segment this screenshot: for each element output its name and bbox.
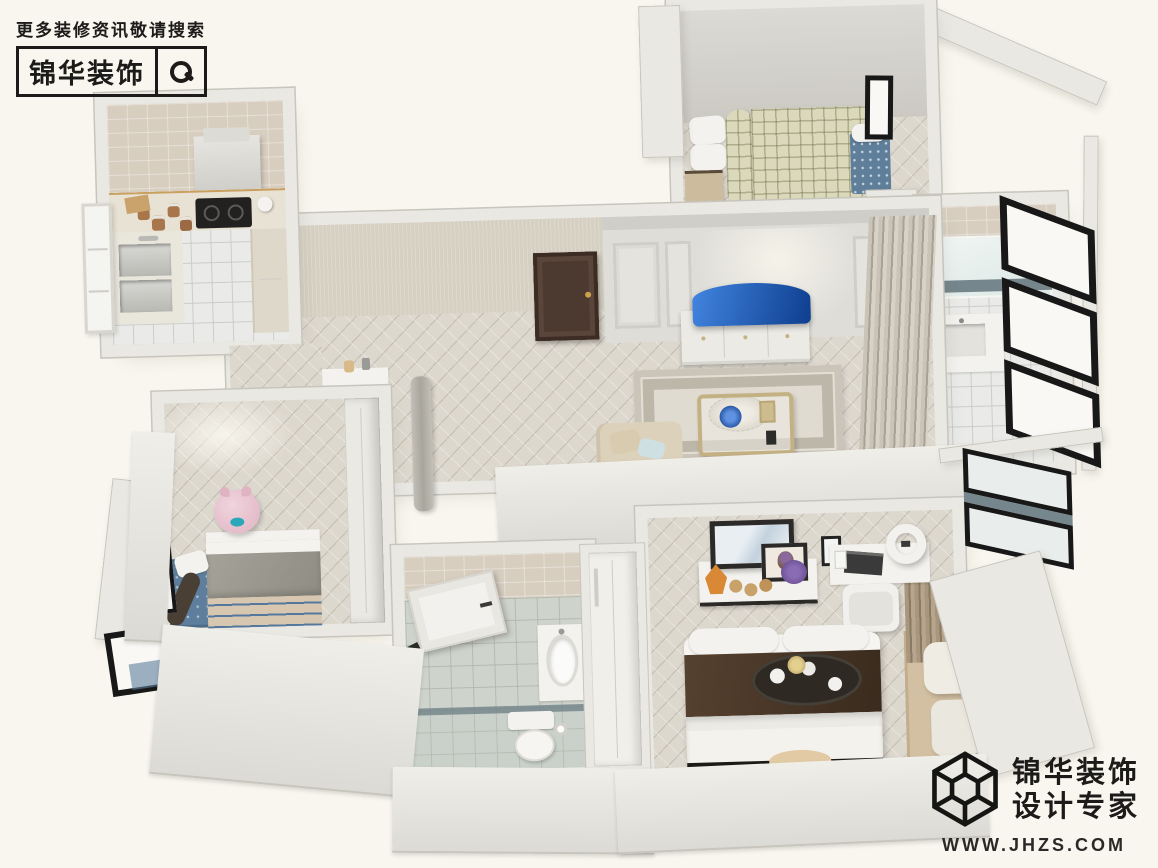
- brand-search-box: 锦华装饰: [16, 46, 207, 97]
- pig-plush-toy: [213, 489, 260, 534]
- search-icon-cell: [158, 49, 204, 94]
- branding-top-left: 更多装修资讯敬请搜索 锦华装饰: [16, 16, 207, 97]
- burner: [203, 205, 219, 221]
- burner: [227, 204, 243, 220]
- gas-stove: [195, 197, 252, 229]
- pillow: [688, 627, 779, 656]
- door-handle: [480, 601, 493, 608]
- wash-basin: [939, 324, 986, 357]
- base-cabinets: [250, 228, 289, 333]
- tall-cabinet: [588, 551, 642, 766]
- lamp-base: [901, 541, 910, 547]
- faucet: [138, 236, 158, 242]
- brand-website: WWW.JHZS.COM: [928, 835, 1140, 856]
- bed-duvet-striped: [207, 595, 322, 628]
- wash-basin-oval: [546, 634, 579, 687]
- console-table: [318, 367, 389, 395]
- entry-door: [533, 251, 599, 341]
- kids-room: [164, 398, 385, 629]
- drawer-knob: [743, 335, 747, 339]
- gold-box: [759, 401, 776, 423]
- door-knob: [585, 292, 591, 298]
- kitchen-window: [81, 203, 115, 334]
- search-icon: [170, 61, 192, 83]
- branding-bottom-right: 锦华装饰 设计专家 WWW.JHZS.COM: [928, 749, 1140, 856]
- range-hood-cap: [203, 127, 249, 142]
- bathroom-main: [403, 552, 589, 772]
- chair-cushion: [849, 591, 894, 626]
- ceiling-light-glow: [164, 400, 296, 478]
- decor-jar: [344, 360, 354, 372]
- spice-jar: [180, 217, 192, 231]
- drawer-knob: [785, 334, 789, 338]
- pig-snout: [230, 517, 244, 526]
- search-hint-text: 更多装修资讯敬请搜索: [16, 16, 207, 41]
- cabinet-seam: [260, 278, 282, 280]
- cabinet-seam: [612, 560, 619, 758]
- laptop: [844, 551, 884, 576]
- spice-jar: [167, 203, 179, 217]
- exterior-wall-face: [149, 624, 424, 798]
- kitchen: [107, 100, 290, 345]
- cup: [770, 668, 785, 683]
- decor-item: [362, 358, 370, 370]
- flower-bouquet: [719, 405, 742, 428]
- pillow: [688, 115, 727, 146]
- pig-ear: [219, 487, 229, 497]
- perfume-bottle: [766, 430, 776, 444]
- drawer-knob: [701, 336, 705, 340]
- window-mullion: [89, 290, 109, 293]
- pig-ear: [241, 486, 251, 496]
- vertical-blind-curtain: [858, 215, 937, 470]
- brand-name: 锦华装饰: [19, 49, 155, 94]
- sink-basin: [120, 279, 173, 312]
- wall-panel: [613, 242, 661, 329]
- cabinet-handle: [594, 569, 599, 607]
- cup: [828, 677, 842, 691]
- wardrobe-seam: [360, 408, 367, 613]
- vanity-counter: [537, 624, 587, 701]
- cube-wireframe-icon: [928, 749, 1002, 831]
- exterior-wall-chunk: [638, 5, 684, 158]
- wardrobe: [344, 398, 385, 624]
- bed-blanket: [206, 551, 321, 598]
- faucet: [959, 318, 964, 323]
- floorplan-3d-render: [0, 0, 1158, 868]
- notebook: [834, 551, 846, 569]
- brand-tagline: 设计专家: [1012, 790, 1140, 824]
- sofa-pillow-blue: [637, 437, 666, 460]
- range-hood: [194, 135, 262, 193]
- shower-glass-tint: [408, 711, 589, 772]
- curtain-drape: [410, 376, 434, 512]
- tv-screen: [692, 281, 811, 326]
- scene-canvas: 更多装修资讯敬请搜索 锦华装饰 锦华装饰: [0, 0, 1158, 868]
- bedroom-top: [678, 4, 929, 209]
- pillow: [690, 144, 727, 171]
- sink-basin: [119, 243, 172, 276]
- brand-name: 锦华装饰: [1012, 756, 1140, 790]
- exterior-wall-beam: [909, 0, 1107, 105]
- coffee-table: [697, 392, 795, 457]
- nightstand: [685, 170, 724, 203]
- exterior-wall-face: [124, 431, 175, 643]
- toilet-tank: [508, 711, 554, 730]
- vanity-counter: [929, 313, 1005, 373]
- window: [865, 75, 893, 139]
- sink-counter: [110, 231, 185, 325]
- master-bedroom: [647, 510, 959, 773]
- pillow: [782, 624, 869, 652]
- window-mullion: [88, 248, 108, 251]
- spice-jar: [152, 215, 165, 230]
